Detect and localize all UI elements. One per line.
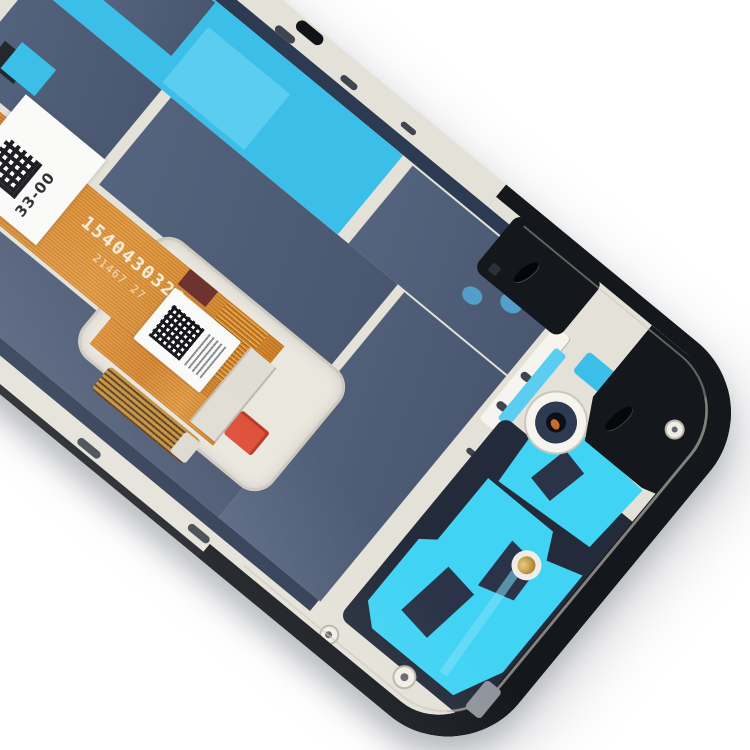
lcd-assembly-frame: 1540430320 21467 27 33-00 xyxy=(0,0,750,750)
photo-sheen xyxy=(0,0,750,750)
product-photo: 1540430320 21467 27 33-00 xyxy=(0,0,750,750)
